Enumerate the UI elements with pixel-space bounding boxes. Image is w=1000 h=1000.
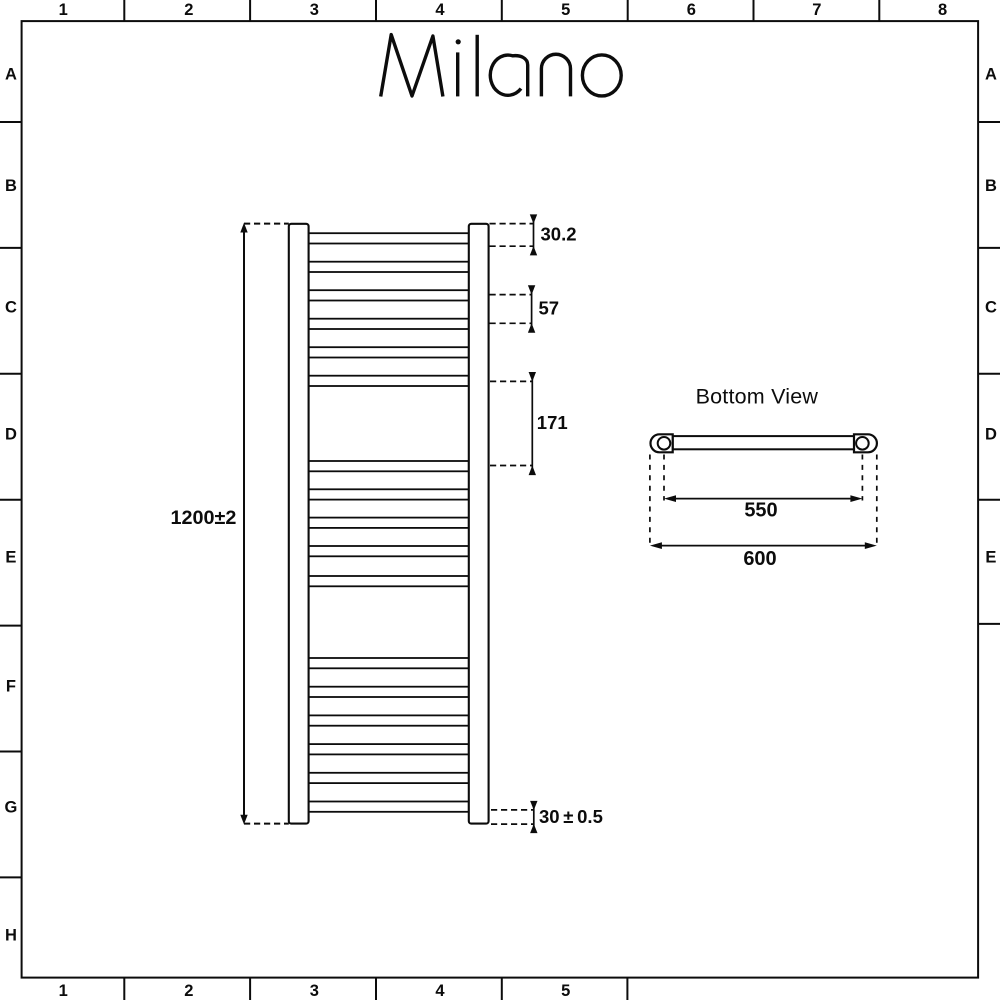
svg-text:4: 4	[435, 982, 445, 1000]
svg-text:C: C	[5, 298, 17, 316]
svg-text:G: G	[4, 799, 17, 817]
svg-text:30 ± 0.5: 30 ± 0.5	[539, 806, 603, 827]
svg-text:B: B	[985, 177, 997, 195]
svg-text:D: D	[985, 426, 997, 444]
svg-text:6: 6	[687, 1, 696, 19]
svg-text:57: 57	[539, 298, 560, 319]
svg-text:E: E	[5, 549, 16, 567]
svg-text:A: A	[5, 65, 17, 83]
svg-text:4: 4	[435, 1, 445, 19]
svg-text:H: H	[5, 926, 17, 944]
svg-text:7: 7	[812, 1, 821, 19]
svg-text:2: 2	[184, 982, 193, 1000]
svg-text:5: 5	[561, 1, 570, 19]
svg-text:2: 2	[184, 1, 193, 19]
svg-text:1: 1	[59, 982, 68, 1000]
svg-text:1200±2: 1200±2	[171, 507, 237, 529]
svg-text:5: 5	[561, 982, 570, 1000]
svg-text:8: 8	[938, 1, 947, 19]
svg-text:3: 3	[310, 982, 319, 1000]
svg-text:3: 3	[310, 1, 319, 19]
svg-text:Bottom View: Bottom View	[696, 384, 819, 408]
svg-text:D: D	[5, 426, 17, 444]
svg-text:F: F	[6, 677, 16, 695]
svg-text:A: A	[985, 65, 997, 83]
svg-text:30.2: 30.2	[541, 224, 577, 245]
svg-text:C: C	[985, 298, 997, 316]
svg-text:E: E	[985, 549, 996, 567]
svg-text:B: B	[5, 177, 17, 195]
svg-text:1: 1	[59, 1, 68, 19]
svg-text:171: 171	[537, 412, 568, 433]
svg-text:600: 600	[743, 548, 776, 570]
svg-text:550: 550	[744, 500, 777, 522]
